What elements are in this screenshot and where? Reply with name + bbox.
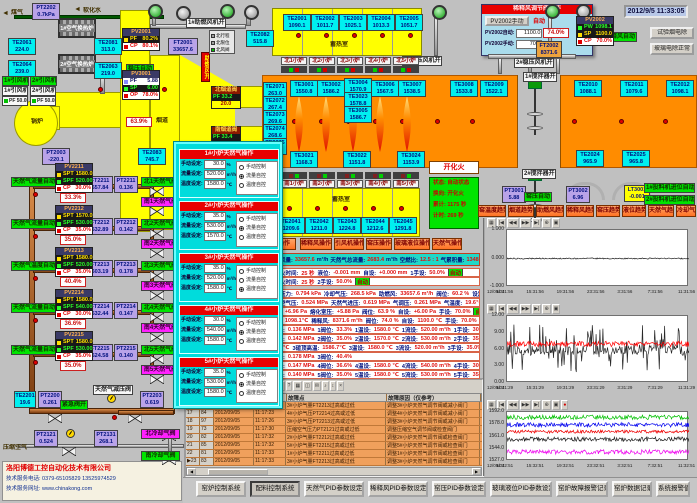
label: 蓄热室: [331, 196, 351, 204]
param-name: PF: [130, 36, 137, 43]
burner-tab-south-4[interactable]: 南4小炉: [365, 180, 391, 188]
fire-change-button[interactable]: 开化火: [429, 161, 479, 174]
chart-toolbar-icon[interactable]: ◀◀: [507, 304, 519, 314]
limit-switch-box: 北行程北限位北风阀: [209, 30, 235, 54]
x-axis-tick: 23:31:56: [587, 289, 605, 294]
sensor-te2010: TE20101088.1: [574, 80, 602, 97]
junction-dot: [371, 206, 376, 211]
burner-tab-north-3[interactable]: 北3小炉: [337, 57, 363, 65]
heat-exchanger-2: 2#空气换热炉: [58, 54, 96, 74]
status-row: 累计: 1175 秒: [433, 200, 478, 211]
label: 2#稳压风机开: [514, 58, 554, 68]
trend-button[interactable]: 烟道趋势: [508, 205, 534, 217]
chart-toolbar-icon[interactable]: ▶▶: [520, 304, 532, 314]
radio-option[interactable]: 手动控制: [239, 163, 277, 172]
sensor-value: 0.7kPa: [33, 12, 59, 19]
sensor-pt2211: PT22110.136: [114, 176, 138, 193]
radio-label: 温度自控: [246, 181, 266, 190]
sensor-value: 1538.5: [399, 89, 425, 96]
nav-button[interactable]: 天然气PID参数设定: [304, 481, 364, 497]
chart-toolbar-icon[interactable]: ▶▶: [520, 218, 532, 228]
radio-label: 手动控制: [246, 319, 266, 328]
gas-panel-2: 2#小炉天然气操作手动设定:35.0%流量设定:530.00m³/h温度设定:1…: [179, 201, 279, 250]
status-row: 计时: 269 秒: [433, 211, 478, 222]
controller-pv2211: PV2211SPT1580.0SPF520.00CP30.0%: [55, 163, 93, 193]
trend-button[interactable]: 冷却气趋势: [676, 205, 696, 217]
nav-button[interactable]: 配料控制系统: [250, 481, 300, 497]
y-axis-tick: 12.00: [480, 312, 504, 318]
burner-tab-south-1[interactable]: 南1小炉: [281, 180, 307, 188]
param-value: 530.00: [76, 346, 93, 353]
alarm-row[interactable]: 22812012/09/0511:17:331#小炉气量FT2211过高或过低调…: [186, 450, 482, 458]
x-axis-tick: 3:31:56: [617, 289, 632, 294]
status-red-icon: [289, 174, 293, 178]
junction-dot: [112, 415, 117, 420]
data-item: 阀位:: [436, 290, 449, 298]
glass-esp-normal-button[interactable]: 玻璃电除正常: [650, 43, 694, 55]
param-value: 35.0%: [75, 227, 91, 234]
sensor-value: 0.619: [141, 400, 163, 407]
mode-chip[interactable]: 自动: [448, 268, 463, 277]
trend-plot[interactable]: [506, 315, 688, 382]
nav-button[interactable]: 稀释风PID参数设定: [368, 481, 428, 497]
field-input[interactable]: 1580.0: [204, 336, 226, 345]
param-name: SPF: [63, 304, 74, 311]
op-button[interactable]: 玻璃液位操作: [394, 238, 430, 250]
data-item: 阀位:: [366, 317, 379, 325]
indicator-square: [124, 80, 128, 84]
fan-icon: [244, 5, 259, 20]
field-label: 流量设定:: [181, 378, 203, 387]
field-unit: %: [227, 160, 231, 169]
toolbar-icon[interactable]: ♪: [322, 381, 329, 391]
controller-row: SPT1570.0: [56, 213, 92, 220]
sensor-pt2203: PT22030.619: [140, 391, 164, 408]
alarm-cell: 11:17:33: [254, 450, 286, 457]
alarm-cell: 2#小炉气量FT2212过高或过低: [286, 434, 386, 441]
data-item: 2手设:: [318, 278, 334, 286]
sensor-value: 224.0: [9, 47, 35, 54]
field-label: 温度设定:: [181, 336, 203, 345]
radio-option[interactable]: 手动控制: [239, 267, 277, 276]
status-row: 状态: 自动状态: [433, 178, 478, 189]
scroll-left-icon[interactable]: ◀: [187, 468, 196, 475]
nav-button[interactable]: 窑压PID参数设定: [432, 481, 486, 497]
radio-label: 流量自控: [246, 328, 266, 337]
fan-freq-value: PF 50.0Hz: [37, 97, 56, 105]
toolbar-icon[interactable]: ?: [286, 381, 293, 391]
sensor-value: 1088.1: [575, 89, 601, 96]
nav-button[interactable]: 玻璃液位PID参数设定: [490, 481, 552, 497]
alarm-cell: 2012/09/05: [214, 434, 254, 441]
chart-toolbar-icon[interactable]: ◀◀: [507, 218, 519, 228]
fan-label: 1#引风机: [2, 86, 28, 96]
damper-title: 北烟道阀: [212, 87, 240, 94]
flame-icon: [374, 96, 386, 152]
field-input[interactable]: 30.0: [204, 160, 226, 169]
junction-dot: [33, 276, 38, 281]
radio-option[interactable]: 温度自控: [239, 285, 277, 294]
controller-row: SPT1580.0: [56, 255, 92, 262]
alarm-cell: 11:17:32: [254, 442, 286, 449]
checkbox-icon: [211, 48, 215, 52]
param-name: SPF: [63, 262, 74, 269]
field-unit: %: [227, 212, 231, 221]
scroll-right-icon[interactable]: ▶: [472, 468, 481, 475]
field-input[interactable]: 1570.0: [204, 232, 226, 241]
chart-toolbar: ▦|◀◀◀▶▶▶|⊕▣: [487, 304, 695, 314]
limit-switch-item[interactable]: 北风阀: [211, 46, 233, 53]
junction-dot: [435, 119, 440, 124]
sensor-value: 313.0: [95, 47, 121, 54]
sensor-value: 0.524: [35, 439, 57, 446]
radio-option[interactable]: 温度自控: [239, 181, 277, 190]
trend-plot[interactable]: [506, 411, 688, 460]
pv2002-mode-label: 自动: [533, 16, 545, 26]
company-info: 洛阳博德工控自动化技术有限公司 技术服务电话: 0379-65105829 13…: [2, 461, 182, 501]
alarm-row[interactable]: 18972012/09/0511:17:263#小炉气压PT2213过高或过低调…: [186, 418, 482, 426]
sensor-tag: TE3002: [318, 82, 344, 89]
test-esp-button[interactable]: 试验烟电除: [650, 27, 694, 39]
x-axis-tick: 11:31:29: [678, 385, 695, 390]
sensor-te3002: TE30021586.2: [317, 80, 345, 97]
alarm-cell: 调整3#小炉天然气调节阀或检查阀门: [386, 458, 480, 465]
field-input[interactable]: 540.00: [204, 326, 226, 335]
radio-option[interactable]: 温度自控: [239, 389, 277, 398]
label: 锅炉: [30, 118, 44, 126]
data-item: 50.0%: [429, 270, 445, 276]
trend-button[interactable]: 天然气趋势: [648, 205, 674, 217]
burner-tab-north-5[interactable]: 北5小炉: [393, 57, 419, 65]
summary-item: 天然气总流量:: [330, 256, 365, 264]
controller-row: SPT1580.0: [56, 339, 92, 346]
chart-toolbar-icon[interactable]: ◀◀: [507, 400, 519, 410]
sensor-te2081: TE2081313.0: [94, 38, 122, 55]
param-value: 80.2%: [142, 36, 158, 43]
sensor-tag: TE2002: [312, 16, 338, 23]
sensor-value: 1291.8: [390, 226, 416, 233]
radio-option[interactable]: 流量自控: [239, 380, 277, 389]
field-input[interactable]: 1580.0: [204, 388, 226, 397]
status-green-icon: [351, 174, 355, 178]
trend-button[interactable]: 窑压趋势: [596, 205, 620, 217]
fan-label: 2#引风机: [30, 86, 56, 96]
flame-icon: [293, 96, 305, 152]
field-input[interactable]: 35.0: [204, 368, 226, 377]
trend-button[interactable]: 液位趋势: [622, 205, 646, 217]
alarm-toolbar: ▤≡?▦◫✉♪↕×: [268, 381, 480, 392]
alarm-row[interactable]: 19732012/09/0511:17:30压缩空气压力PT2121过高或过低调…: [186, 426, 482, 434]
field-unit: %: [227, 264, 231, 273]
x-axis-tick: 11:31:56: [678, 289, 695, 294]
sensor-value: 1151.8: [344, 160, 370, 167]
radio-option[interactable]: 手动控制: [239, 215, 277, 224]
burner-tab-north-1[interactable]: 北1小炉: [281, 57, 307, 65]
nav-button[interactable]: 窑炉故障报警记录: [556, 481, 608, 497]
radio-option[interactable]: 流量自控: [239, 172, 277, 181]
radio-option[interactable]: 流量自控: [239, 328, 277, 337]
data-item: 助燃风:: [379, 290, 397, 298]
sensor-te2042: TE20421211.0: [305, 217, 333, 234]
mode-chip[interactable]: 自动: [355, 277, 370, 286]
fan-icon: [545, 4, 560, 19]
alarm-row[interactable]: 20822012/09/0511:17:322#小炉气量FT2212过高或过低调…: [186, 434, 482, 442]
limit-switch-item[interactable]: 北行程: [211, 32, 233, 39]
radio-icon: [239, 330, 244, 335]
chart-toolbar-icon[interactable]: ⊕: [542, 304, 550, 314]
param-value: 6.00: [147, 85, 158, 92]
param-value: 1098.1: [595, 24, 612, 31]
sensor-value: 1586.7: [345, 115, 371, 122]
alarm-cell: 2012/09/05: [214, 450, 254, 457]
sensor-pt2213: PT22130.178: [114, 260, 138, 277]
company-name: 洛阳博德工控自动化技术有限公司: [6, 464, 178, 474]
stirrer-blade: [527, 112, 543, 116]
radio-icon: [239, 339, 244, 344]
gas-arrow-icon: ◄: [2, 10, 9, 17]
param-name: CP: [63, 185, 71, 192]
scroll-thumb[interactable]: [208, 469, 268, 475]
junction-dot: [663, 119, 668, 124]
status-red-icon: [295, 68, 299, 72]
toolbar-icon[interactable]: ▦: [293, 381, 302, 391]
radio-label: 流量自控: [246, 172, 266, 181]
burner-tab-north-4[interactable]: 北4小炉: [365, 57, 391, 65]
trend-button[interactable]: 窑温度趋势: [478, 205, 506, 217]
chart-toolbar-icon[interactable]: ⊕: [542, 218, 550, 228]
sensor-value: 1586.2: [318, 89, 344, 96]
data-row: 1压力:0.136 MPa1阀位:33.3%1温设:1580.0 ℃1流设:52…: [266, 325, 480, 334]
radio-option[interactable]: 流量自控: [239, 276, 277, 285]
field-label: 流量设定:: [181, 274, 203, 283]
data-row: 窑压:+6.96 Pa熔化室压:+5.88 Pa阀位:63.9 %自设:+6.0…: [266, 307, 480, 316]
chart-toolbar-icon[interactable]: ▶▶: [520, 400, 532, 410]
chart-toolbar-icon[interactable]: ▶|: [532, 400, 541, 410]
radio-option[interactable]: 手动控制: [239, 371, 277, 380]
sensor-tag: TE3024: [398, 153, 424, 160]
sensor-te2011: TE20111079.6: [620, 80, 648, 97]
data-item: 36.6%: [336, 363, 352, 369]
burner-status-south: [281, 172, 307, 179]
datetime-display: 2012/9/5 11:33:05: [624, 5, 688, 18]
y-axis-tick: 1561.0: [480, 433, 504, 439]
chart-toolbar-icon[interactable]: ⊕: [542, 400, 550, 410]
chart-toolbar-icon[interactable]: ▣: [552, 218, 561, 228]
radio-label: 流量自控: [246, 380, 266, 389]
field-unit: m³/h: [227, 378, 237, 387]
y-axis-tick: 0.000: [480, 255, 504, 261]
junction-dot: [287, 206, 292, 211]
sensor-value: 1212.6: [362, 226, 388, 233]
sensor-tag: TE2063: [95, 64, 121, 71]
field-input[interactable]: 530.00: [204, 378, 226, 387]
x-axis-tick: 7:32:51: [648, 463, 663, 468]
alarm-header-cell: 故障点: [287, 394, 387, 401]
burner-tab-north-2[interactable]: 北2小炉: [309, 57, 335, 65]
controller-row: CP30.0%: [56, 185, 92, 192]
sensor-te2083: TE2083745.7: [138, 148, 166, 165]
alarm-row[interactable]: 21852012/09/0511:17:325#小炉气量FT2215过高或过低调…: [186, 442, 482, 450]
label: 蓄热室: [329, 41, 349, 49]
sensor-te2001: TE20011090.1: [283, 14, 311, 31]
label: 北冷却气阀: [141, 429, 180, 439]
flow-meter-icon: [66, 429, 75, 438]
valve-position: 63.9%: [126, 117, 152, 127]
data-item: +6.00 Pa: [414, 309, 436, 315]
label: 天然气减压阀: [93, 385, 133, 395]
trend-plot[interactable]: [506, 229, 688, 286]
indicator-square: [4, 99, 8, 103]
sensor-tag: TE2042: [306, 219, 332, 226]
data-item: 自设:: [398, 308, 411, 316]
burner-tab-south-2[interactable]: 南2小炉: [309, 180, 335, 188]
data-row: 窑温:1098.1℃稀释风:8371.6 m³/h阀位:74.0 %自设:110…: [266, 316, 480, 325]
alarm-cell: 11:17:26: [254, 418, 286, 425]
field-input[interactable]: 1580.0: [204, 180, 226, 189]
data-item: 40.4%: [336, 354, 352, 360]
stop-icon[interactable]: ●: [561, 400, 568, 410]
burner-tab-south-5[interactable]: 南5小炉: [393, 180, 419, 188]
status-green-icon: [317, 68, 321, 72]
data-item: 稀释风:: [311, 317, 329, 325]
field-input[interactable]: 520.00: [204, 274, 226, 283]
summary-item: 气累积量:: [441, 256, 465, 264]
alarm-scrollbar[interactable]: ◀▶: [186, 467, 482, 476]
alarm-cell: 19: [186, 426, 200, 433]
label: 2#引风机开: [30, 76, 57, 86]
status-red-icon: [407, 68, 411, 72]
op-button[interactable]: 窑压操作: [366, 238, 392, 250]
sensor-tag: TE2064: [9, 62, 35, 69]
nav-button[interactable]: 窑炉数据记录: [612, 481, 652, 497]
toolbar-icon[interactable]: ×: [337, 381, 344, 391]
status-red-icon: [373, 174, 377, 178]
valve-icon: [128, 410, 142, 419]
junction-dot: [98, 87, 103, 92]
sensor-te2043: TE20431224.8: [333, 217, 361, 234]
limit-switch-item[interactable]: 北限位: [211, 39, 233, 46]
chart-toolbar-icon[interactable]: ▣: [552, 400, 561, 410]
data-row: 压缩空气压:0.524 MPa天然气进压:0.619 MPa气调压:0.261 …: [266, 298, 480, 307]
sensor-value: 1090.1: [284, 23, 310, 30]
pv2002-manual-button[interactable]: PV2002手动: [485, 16, 529, 26]
op-button[interactable]: 天然气操作: [432, 238, 462, 250]
burner-tab-south-3[interactable]: 南3小炉: [337, 180, 363, 188]
sensor-tag: PT3001: [503, 188, 525, 195]
toolbar-icon[interactable]: ↕: [330, 381, 337, 391]
chart-toolbar-icon[interactable]: ▶|: [532, 218, 541, 228]
field-label: 手动设定:: [181, 316, 203, 325]
alarm-row[interactable]: ▶23832012/09/0511:17:333#小炉气量FT2213过高或过低…: [186, 458, 482, 466]
label: 煤气: [10, 9, 24, 17]
junction-dot: [324, 33, 329, 38]
data-item: 33.3%: [336, 327, 352, 333]
data-item: 1586.7℃: [322, 345, 345, 351]
nav-button[interactable]: 系统报警值设定: [656, 481, 690, 497]
damper-pos: 20.0: [212, 101, 240, 108]
op-button[interactable]: 引风机操作: [334, 238, 364, 250]
burner-status-north: [365, 66, 391, 73]
field-input[interactable]: 35.0: [204, 264, 226, 273]
chart-toolbar-icon[interactable]: ▶|: [532, 304, 541, 314]
radio-option[interactable]: 温度自控: [239, 337, 277, 346]
flow-meter-icon: [107, 394, 116, 403]
controller-row: SP6.00: [123, 85, 159, 92]
field-input[interactable]: 1580.0: [204, 284, 226, 293]
indicator-square: [578, 33, 582, 37]
field-input[interactable]: 30.0: [204, 316, 226, 325]
nav-button[interactable]: 窑炉控制系统: [196, 481, 246, 497]
alarm-row[interactable]: 17842012/09/0511:17:234#小炉气压PT2214过高或过低调…: [186, 410, 482, 418]
data-item: 阀位:: [362, 308, 375, 316]
controller-row: SPF520.00: [56, 178, 92, 185]
toolbar-icon[interactable]: ◫: [303, 381, 312, 391]
alarm-cell: 2012/09/05: [214, 426, 254, 433]
field-label: 温度设定:: [181, 388, 203, 397]
field-unit: ℃: [227, 336, 232, 345]
junction-dot: [619, 119, 624, 124]
sensor-tag: TE3004: [345, 80, 371, 87]
field-input[interactable]: 530.00: [204, 222, 226, 231]
sensor-value: 1168.3: [291, 160, 317, 167]
damper-pf: PF 33.2: [212, 94, 240, 101]
sensor-value: 515.8: [247, 39, 273, 46]
toolbar-icon[interactable]: ✉: [313, 381, 321, 391]
company-web[interactable]: 技术服务网址: www.chinakong.com: [6, 484, 178, 494]
data-item: 气温度:: [444, 299, 462, 307]
data-item: 气调压:: [393, 299, 411, 307]
data-item: 冷却气压:: [324, 290, 348, 298]
op-button[interactable]: 稀释风操作: [300, 238, 332, 250]
trend-button[interactable]: 稀释风趋势: [566, 205, 594, 217]
controller-row: CP35.0%: [56, 227, 92, 234]
sensor-te3007: TE30071538.5: [398, 80, 426, 97]
y-axis-tick: 6.00: [480, 346, 504, 352]
mode-radio-group: 手动控制流量自控温度自控: [236, 317, 278, 351]
pv2002-auto-field[interactable]: 1100.0: [516, 29, 542, 38]
burner-status-north: [309, 66, 335, 73]
field-input[interactable]: 520.00: [204, 170, 226, 179]
data-item: 35.0%: [336, 372, 352, 378]
flame-icon: [401, 96, 413, 152]
data-item: 520.00 m³/h: [415, 345, 445, 351]
radio-option[interactable]: 温度自控: [239, 233, 277, 242]
sensor-tag: TE2011: [621, 82, 647, 89]
checkbox-icon: [211, 41, 215, 45]
limit-switch-label: 北风阀: [216, 46, 230, 53]
x-axis-tick: 23:32:51: [587, 463, 605, 468]
sensor-value: 239.0: [9, 69, 35, 76]
radio-option[interactable]: 流量自控: [239, 224, 277, 233]
radio-option[interactable]: 手动控制: [239, 319, 277, 328]
sensor-value: 1011.7: [312, 23, 338, 30]
field-input[interactable]: 35.0: [204, 212, 226, 221]
sensor-tag: PT3002: [567, 188, 589, 195]
alarm-cell: 2012/09/05: [214, 410, 254, 417]
indicator-square: [124, 45, 128, 49]
param-value: 520.00: [76, 178, 93, 185]
sensor-te3006: TE30061567.5: [371, 80, 399, 97]
trend-button[interactable]: 助燃风趋势: [536, 205, 564, 217]
param-name: SPT: [63, 171, 74, 178]
data-item: 0.261 MPa: [414, 300, 441, 306]
status-green-icon: [345, 68, 349, 72]
param-name: SPF: [63, 346, 74, 353]
data-item: 0.524 MPa: [301, 300, 328, 306]
param-value: 530.00: [76, 220, 93, 227]
chart-toolbar-icon[interactable]: ▣: [552, 304, 561, 314]
data-item: 自设:: [363, 269, 376, 277]
